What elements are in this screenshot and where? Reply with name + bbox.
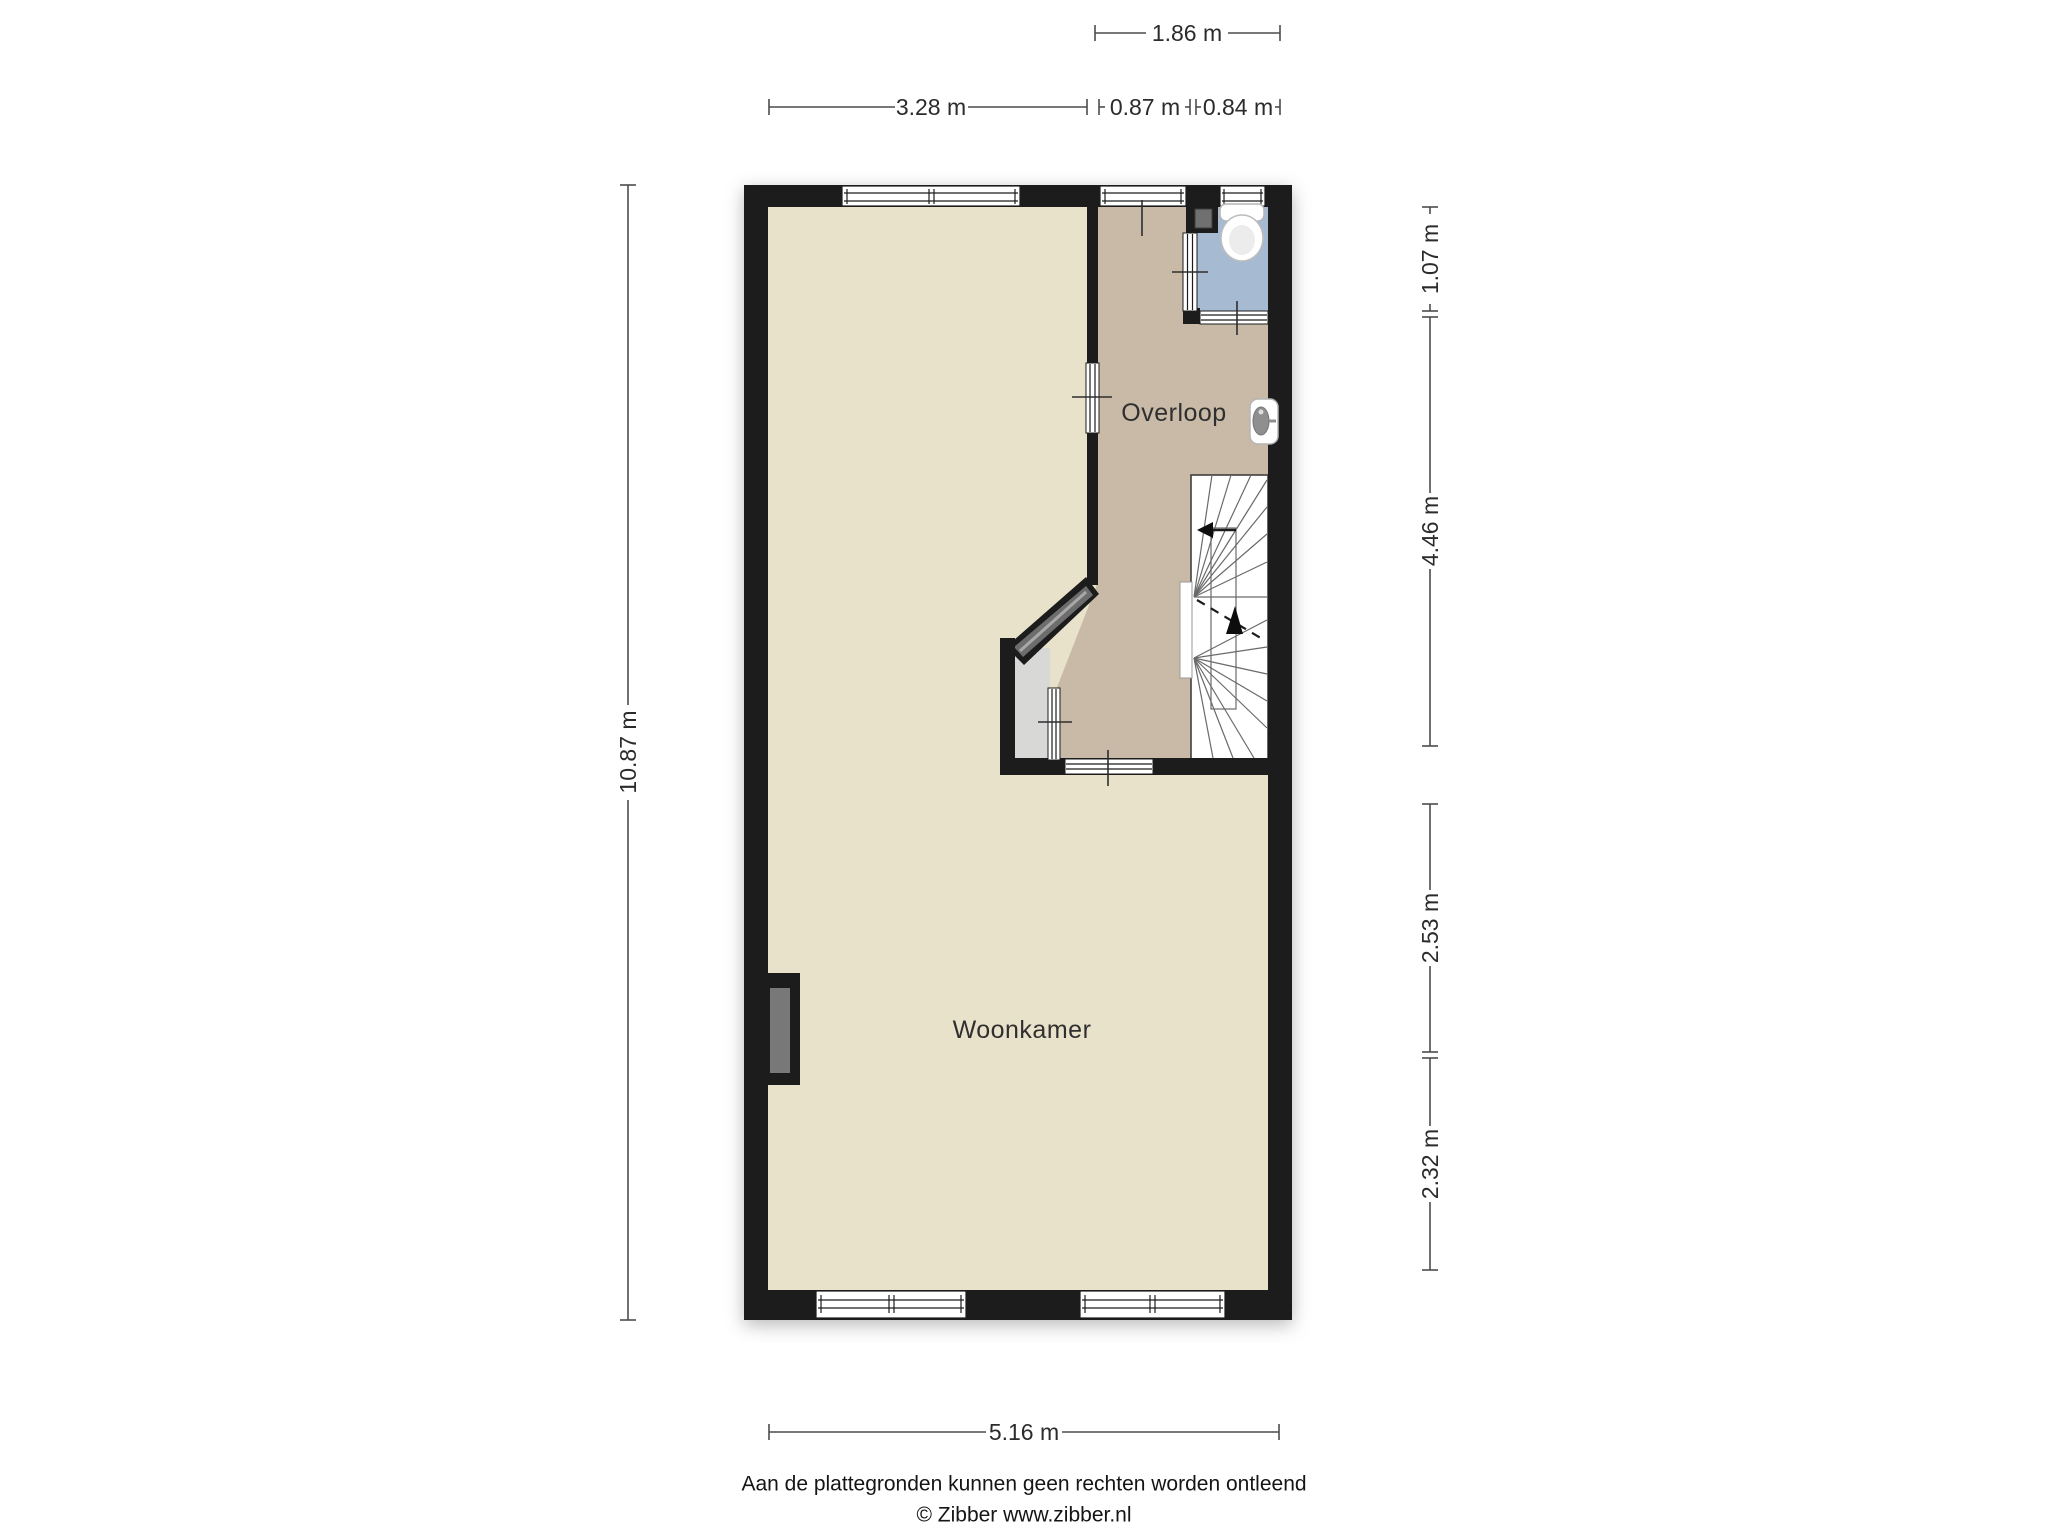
entry-door-icon: [768, 973, 800, 1085]
window-top-left: [842, 186, 1020, 206]
floor-plan: [744, 185, 1292, 1320]
dim-label: 5.16 m: [989, 1419, 1059, 1445]
dim-label: 2.53 m: [1417, 893, 1443, 963]
dim-label: 4.46 m: [1417, 496, 1443, 566]
overloop-glass-door: [1065, 759, 1153, 774]
dimension-left: 10.87 m: [615, 185, 641, 1320]
stair-opening-edge: [1180, 582, 1192, 678]
dimension-right: 1.07 m 4.46 m 2.53 m 2.32 m: [1417, 207, 1443, 1270]
divider-glass-panel: [1086, 363, 1099, 433]
dim-label: 3.28 m: [896, 94, 966, 120]
room-label-woonkamer: Woonkamer: [953, 1016, 1092, 1044]
stairs-icon: [1180, 475, 1268, 760]
toilet-icon: [1220, 204, 1264, 261]
dim-label: 1.86 m: [1152, 20, 1222, 46]
closet-floor: [1015, 648, 1050, 760]
wall-left: [744, 185, 768, 1320]
window-bottom-right: [1080, 1291, 1225, 1318]
room-label-overloop: Overloop: [1121, 399, 1226, 427]
footer-disclaimer: Aan de plattegronden kunnen geen rechten…: [741, 1473, 1306, 1496]
dim-label: 0.87 m: [1110, 94, 1180, 120]
sink-icon: [1250, 399, 1278, 444]
dimension-top-1: 1.86 m: [1095, 20, 1280, 46]
dim-label: 10.87 m: [615, 710, 641, 793]
closet-glass-wall: [1048, 688, 1060, 760]
dimension-bottom: 5.16 m: [769, 1419, 1279, 1445]
duct-icon: [1195, 209, 1212, 228]
wall-closet-left: [1000, 638, 1015, 775]
floorplan-page: Overloop Woonkamer 1.86 m 3.28 m 0.87 m …: [0, 0, 2048, 1536]
dim-label: 2.32 m: [1417, 1129, 1443, 1199]
window-toilet: [1220, 186, 1265, 206]
dimension-top-2: 3.28 m 0.87 m 0.84 m: [769, 94, 1280, 120]
window-top-overloop: [1100, 186, 1186, 206]
dim-label: 0.84 m: [1203, 94, 1273, 120]
window-bottom-left: [816, 1291, 966, 1318]
wall-right: [1268, 185, 1292, 1320]
footer-copyright: © Zibber www.zibber.nl: [916, 1504, 1131, 1527]
floorplan-svg: Overloop Woonkamer 1.86 m 3.28 m 0.87 m …: [0, 0, 2048, 1536]
dim-label: 1.07 m: [1417, 224, 1443, 294]
toilet-glass-wall-bottom: [1200, 311, 1268, 324]
